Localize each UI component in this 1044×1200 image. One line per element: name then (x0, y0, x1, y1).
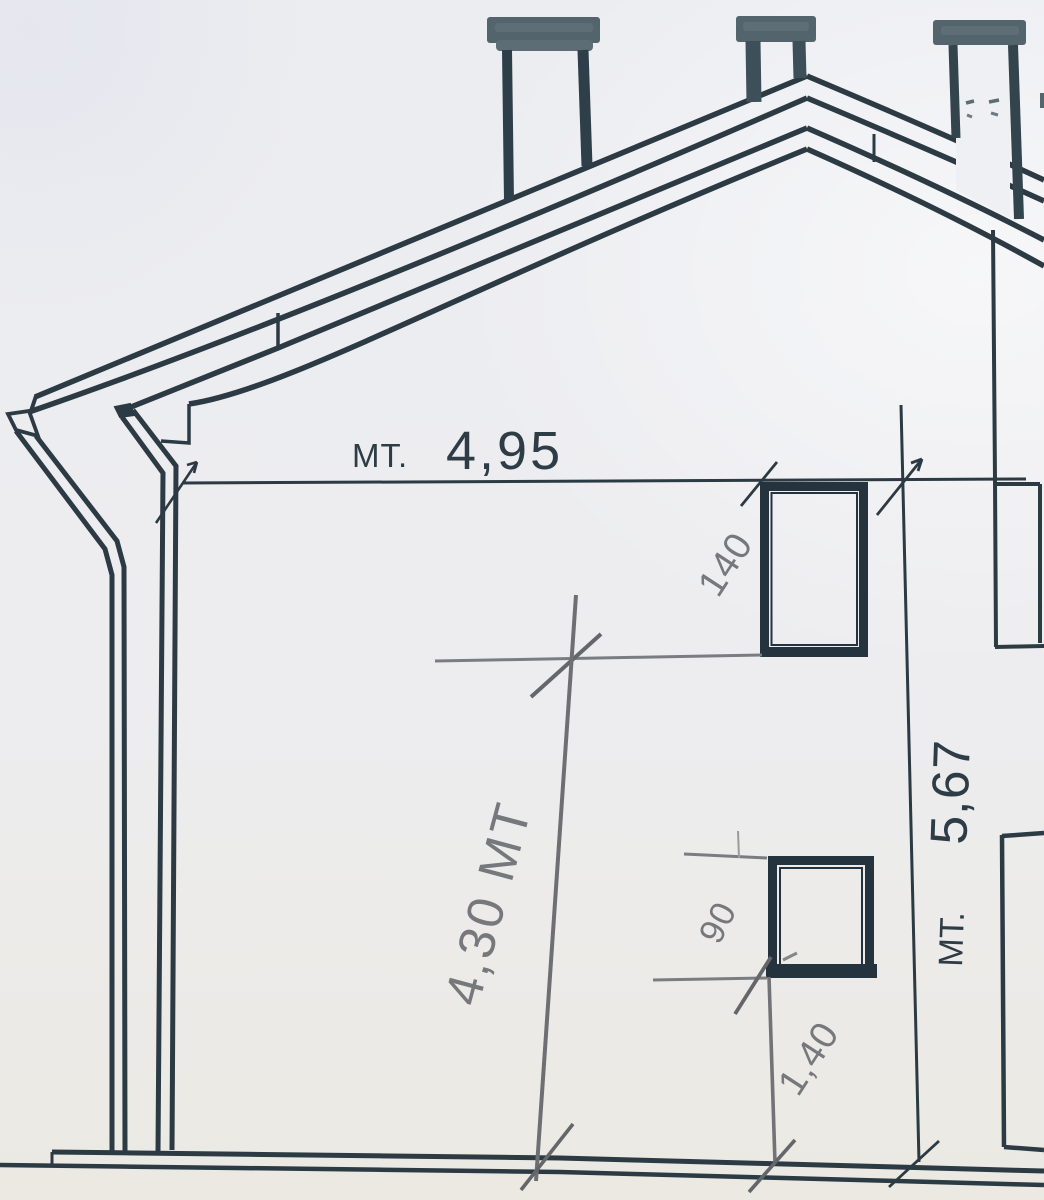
svg-text:1,40: 1,40 (770, 1015, 848, 1103)
svg-text:MT.: MT. (932, 911, 972, 967)
svg-text:4,30 MT: 4,30 MT (434, 795, 543, 1011)
svg-text:MT.: MT. (352, 437, 408, 474)
svg-text:5,67: 5,67 (920, 738, 982, 845)
svg-text:140: 140 (690, 525, 761, 604)
svg-text:4,95: 4,95 (446, 421, 563, 481)
svg-text:90: 90 (691, 895, 744, 949)
